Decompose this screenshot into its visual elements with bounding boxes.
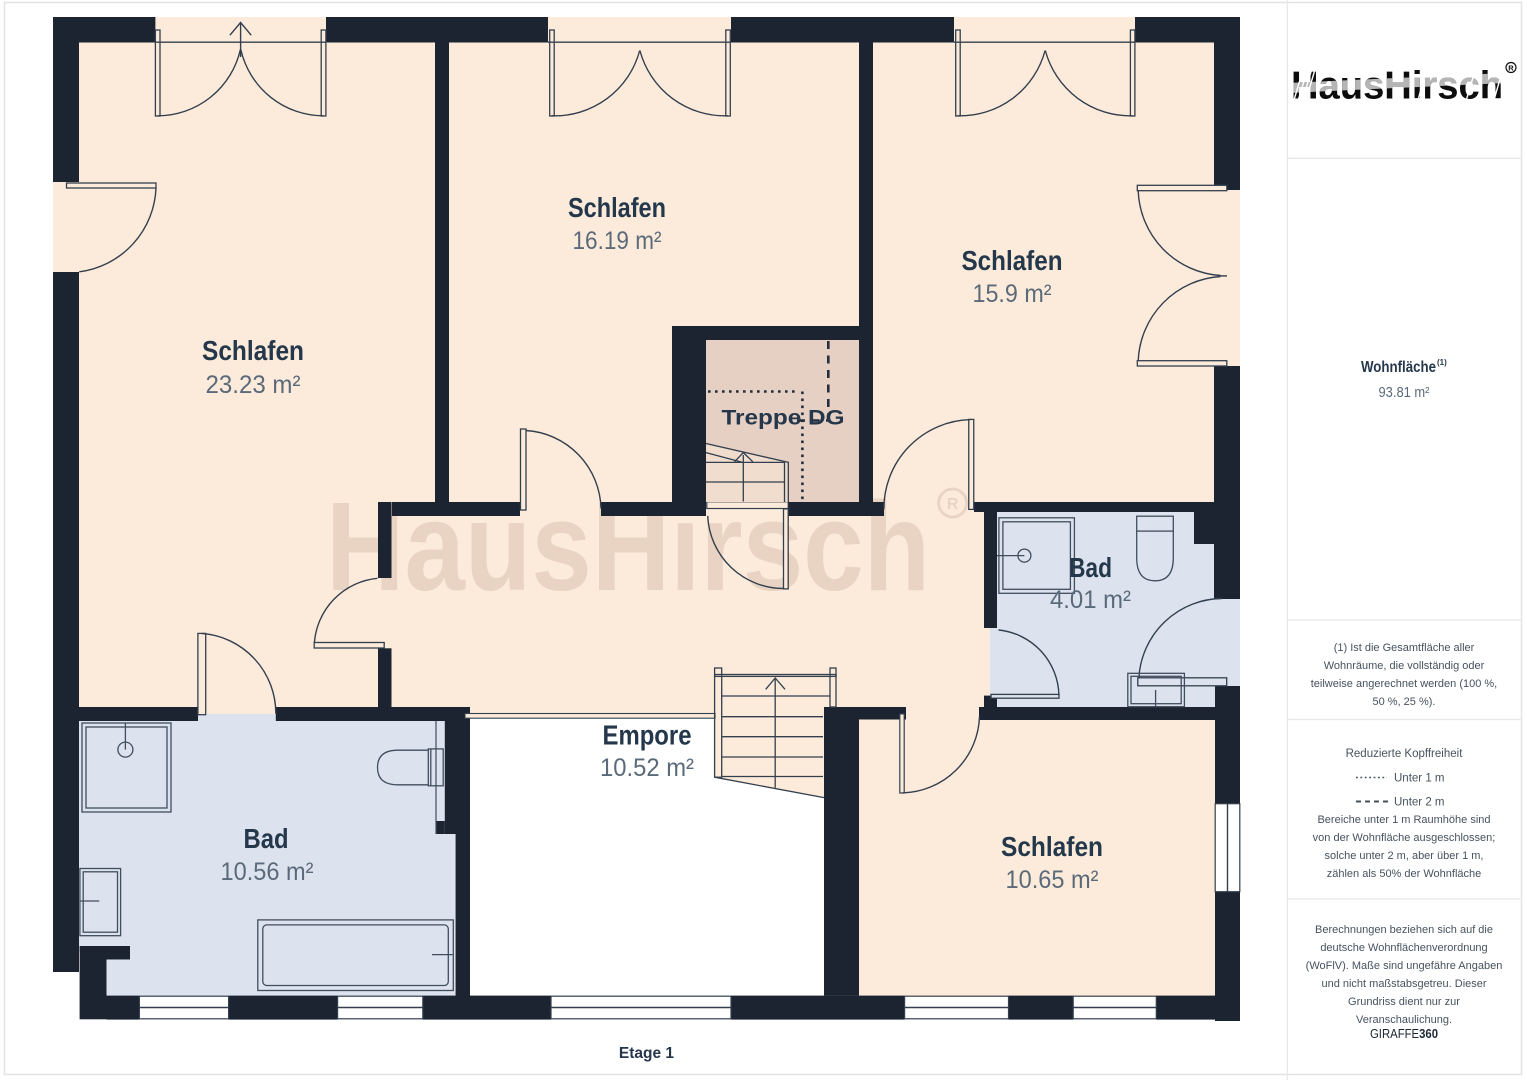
- svg-text:R: R: [1508, 63, 1514, 72]
- svg-text:Bad: Bad: [244, 823, 289, 854]
- svg-text:Wohnfläche: Wohnfläche: [1361, 359, 1436, 376]
- svg-text:Etage 1: Etage 1: [619, 1045, 675, 1062]
- svg-text:Schlafen: Schlafen: [962, 245, 1063, 276]
- svg-text:4.01 m²: 4.01 m²: [1050, 586, 1131, 614]
- svg-text:Bereiche unter 1 m Raumhöhe si: Bereiche unter 1 m Raumhöhe sind: [1317, 814, 1490, 826]
- svg-text:15.9 m²: 15.9 m²: [973, 280, 1052, 308]
- svg-text:Unter 2 m: Unter 2 m: [1394, 797, 1445, 809]
- svg-text:Grundriss dient nur zur: Grundriss dient nur zur: [1348, 996, 1460, 1008]
- svg-text:Wohnräume, die vollständig ode: Wohnräume, die vollständig oder: [1324, 660, 1485, 672]
- svg-text:R: R: [947, 496, 959, 513]
- svg-text:10.65 m²: 10.65 m²: [1006, 866, 1099, 894]
- svg-text:deutsche Wohnflächenverordnung: deutsche Wohnflächenverordnung: [1320, 942, 1487, 954]
- svg-text:16.19 m²: 16.19 m²: [573, 227, 662, 255]
- svg-text:Berechnungen beziehen sich auf: Berechnungen beziehen sich auf die: [1315, 924, 1493, 936]
- svg-text:Schlafen: Schlafen: [568, 192, 666, 223]
- svg-text:zählen als 50% der Wohnfläche: zählen als 50% der Wohnfläche: [1327, 868, 1482, 880]
- svg-text:HausHirsch: HausHirsch: [326, 476, 930, 617]
- svg-text:(1): (1): [1437, 358, 1447, 367]
- svg-text:(WoFlV). Maße sind ungefähre A: (WoFlV). Maße sind ungefähre Angaben: [1306, 960, 1503, 972]
- svg-text:50 %, 25 %).: 50 %, 25 %).: [1373, 696, 1436, 708]
- svg-text:93.81 m²: 93.81 m²: [1379, 385, 1430, 401]
- svg-text:und nicht maßstabsgetreu. Dies: und nicht maßstabsgetreu. Dieser: [1321, 978, 1486, 990]
- svg-text:Unter 1 m: Unter 1 m: [1394, 773, 1445, 785]
- svg-text:GIRAFFE360: GIRAFFE360: [1370, 1027, 1438, 1041]
- svg-text:10.56 m²: 10.56 m²: [221, 858, 314, 886]
- svg-text:Reduzierte Kopffreiheit: Reduzierte Kopffreiheit: [1346, 748, 1464, 760]
- svg-text:10.52 m²: 10.52 m²: [600, 754, 694, 782]
- svg-text:(1) Ist die Gesamtfläche aller: (1) Ist die Gesamtfläche aller: [1334, 642, 1475, 654]
- svg-text:Empore: Empore: [603, 720, 692, 751]
- svg-text:Bad: Bad: [1069, 552, 1112, 583]
- svg-text:Schlafen: Schlafen: [202, 335, 304, 366]
- svg-text:von der Wohnfläche ausgeschlos: von der Wohnfläche ausgeschlossen;: [1313, 832, 1496, 844]
- svg-text:solche unter 2 m, aber über 1: solche unter 2 m, aber über 1 m,: [1325, 850, 1484, 862]
- svg-text:Treppe DG: Treppe DG: [722, 406, 845, 430]
- svg-text:Veranschaulichung.: Veranschaulichung.: [1356, 1014, 1452, 1026]
- svg-text:23.23 m²: 23.23 m²: [206, 371, 301, 399]
- svg-text:Schlafen: Schlafen: [1001, 831, 1103, 862]
- svg-text:teilweise angerechnet werden (: teilweise angerechnet werden (100 %,: [1311, 678, 1498, 690]
